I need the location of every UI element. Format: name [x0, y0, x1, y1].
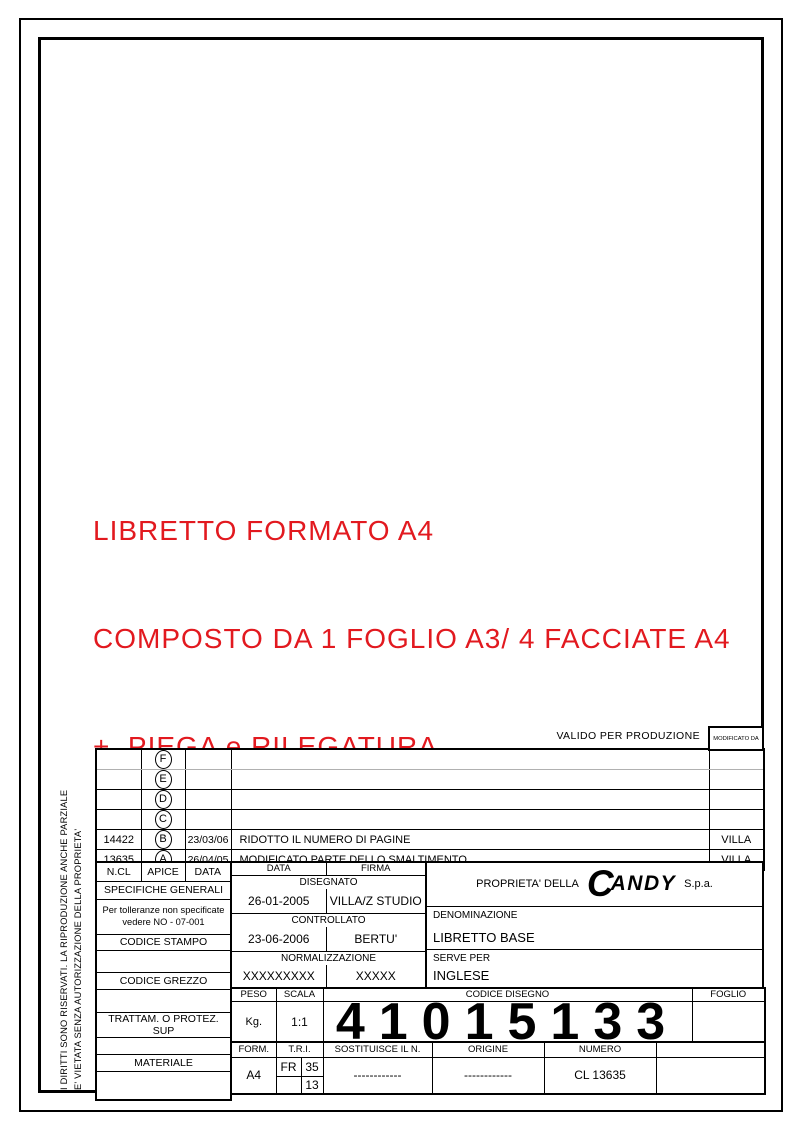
revision-apice: F [141, 749, 185, 770]
denominazione-value: LIBRETTO BASE [433, 930, 762, 945]
proprieta-cell: PROPRIETA' DELLA C ANDY S.p.a. [426, 862, 763, 906]
normalizzazione-date: XXXXXXXXX [231, 965, 326, 988]
spa-label: S.p.a. [684, 878, 713, 890]
materiale-value-cell [96, 1071, 231, 1100]
revision-apice: D [141, 790, 185, 810]
disclaimer-line-1: I DIRITTI SONO RISERVATI. LA RIPRODUZION… [58, 745, 72, 1090]
tri-fr-value: FR [276, 1057, 301, 1076]
codice-grezzo-label: CODICE GREZZO [96, 972, 231, 989]
serve-per-value: INGLESE [433, 968, 762, 983]
codice-disegno-header: CODICE DISEGNO [323, 988, 692, 1001]
data-header: DATA [185, 862, 231, 881]
apice-circle-d: D [155, 790, 172, 809]
revision-row-c: C [96, 810, 764, 830]
revision-date [185, 790, 231, 810]
extra-value-cell [656, 1057, 765, 1094]
codice-stampo-label: CODICE STAMPO [96, 934, 231, 950]
data-column-header: DATA [231, 862, 326, 875]
numero-header: NUMERO [544, 1042, 656, 1057]
serve-per-cell: SERVE PER INGLESE [426, 949, 763, 988]
revision-author [709, 770, 764, 790]
revision-ncl [96, 770, 141, 790]
normalizzazione-firma: XXXXX [326, 965, 426, 988]
candy-logo-rest: ANDY [611, 872, 677, 896]
tolleranze-line-2: vedere NO - 07-001 [97, 917, 230, 929]
controllato-date: 23-06-2006 [231, 927, 326, 951]
revision-apice: B [141, 830, 185, 850]
controllato-firma: BERTU' [326, 927, 426, 951]
sostituisce-header: SOSTITUISCE IL N. [323, 1042, 432, 1057]
copyright-disclaimer: I DIRITTI SONO RISERVATI. LA RIPRODUZION… [58, 745, 86, 1090]
revision-ncl [96, 790, 141, 810]
peso-value: Kg. [231, 1001, 276, 1043]
candy-logo: C ANDY [587, 869, 676, 899]
apice-circle-c: C [155, 810, 172, 829]
revision-row-b: 14422 B 23/03/06 RIDOTTO IL NUMERO DI PA… [96, 830, 764, 850]
serve-per-label: SERVE PER [433, 953, 762, 964]
controllato-label: CONTROLLATO [231, 913, 426, 927]
foglio-header: FOGLIO [692, 988, 765, 1001]
revision-table: F E D C 14422 B 23/ [95, 748, 765, 871]
codice-disegno-value: 41015133 [323, 1001, 692, 1043]
disegnato-firma: VILLA/Z STUDIO [326, 889, 426, 913]
denominazione-cell: DENOMINAZIONE LIBRETTO BASE [426, 906, 763, 949]
titleblock-left-column: N.CL APICE DATA SPECIFICHE GENERALI Per … [95, 861, 232, 1101]
scala-value: 1:1 [276, 1001, 323, 1043]
revision-date [185, 749, 231, 770]
red-notice-line-1: LIBRETTO FORMATO A4 [93, 513, 731, 549]
revision-ncl [96, 749, 141, 770]
apice-header: APICE [141, 862, 185, 881]
tolleranze-note: Per tolleranze non specificate vedere NO… [96, 899, 231, 934]
revision-apice: C [141, 810, 185, 830]
apice-circle-f: F [155, 750, 172, 769]
modificato-da-header: MODIFICATO DA [708, 726, 764, 751]
denominazione-label: DENOMINAZIONE [433, 910, 762, 921]
tri-13-value: 13 [301, 1076, 323, 1094]
revision-row-e: E [96, 770, 764, 790]
titleblock-format-band: FORM. T.R.I. SOSTITUISCE IL N. ORIGINE N… [230, 1041, 766, 1095]
codice-stampo-value-cell [96, 950, 231, 972]
revision-description: RIDOTTO IL NUMERO DI PAGINE [231, 830, 709, 850]
revision-apice: E [141, 770, 185, 790]
scala-header: SCALA [276, 988, 323, 1001]
revision-author [709, 790, 764, 810]
ncl-apice-data-header-row: N.CL APICE DATA [96, 862, 231, 881]
disegnato-date: 26-01-2005 [231, 889, 326, 913]
revision-row-d: D [96, 790, 764, 810]
trattamento-label: TRATTAM. O PROTEZ. SUP [96, 1012, 231, 1037]
titleblock-signatures: DATA FIRMA DISEGNATO 26-01-2005 VILLA/Z … [230, 861, 427, 989]
extra-header-cell [656, 1042, 765, 1057]
revision-ncl [96, 810, 141, 830]
candy-logo-c: C [587, 869, 614, 899]
revision-author [709, 810, 764, 830]
valido-per-produzione-label: VALIDO PER PRODUZIONE [500, 730, 700, 742]
revision-row-f: F [96, 749, 764, 770]
form-header: FORM. [231, 1042, 276, 1057]
apice-circle-e: E [155, 770, 172, 789]
firma-column-header: FIRMA [326, 862, 426, 875]
codice-grezzo-value-cell [96, 989, 231, 1012]
revision-ncl: 14422 [96, 830, 141, 850]
origine-value: ------------ [432, 1057, 544, 1094]
revision-description [231, 790, 709, 810]
titleblock-code-band: PESO SCALA CODICE DISEGNO FOGLIO Kg. 1:1… [230, 987, 766, 1044]
revision-author: VILLA [709, 830, 764, 850]
ncl-header: N.CL [96, 862, 141, 881]
normalizzazione-label: NORMALIZZAZIONE [231, 951, 426, 965]
tri-empty-cell [276, 1076, 301, 1094]
tolleranze-line-1: Per tolleranze non specificate [97, 905, 230, 917]
disegnato-label: DISEGNATO [231, 875, 426, 889]
red-notice-line-2: COMPOSTO DA 1 FOGLIO A3/ 4 FACCIATE A4 [93, 621, 731, 657]
apice-circle-b: B [155, 830, 172, 849]
tri-header: T.R.I. [276, 1042, 323, 1057]
tri-35-value: 35 [301, 1057, 323, 1076]
numero-value: CL 13635 [544, 1057, 656, 1094]
foglio-value-cell [692, 1001, 765, 1043]
proprieta-label: PROPRIETA' DELLA [476, 878, 579, 890]
revision-description [231, 749, 709, 770]
revision-date [185, 770, 231, 790]
revision-description [231, 810, 709, 830]
materiale-label: MATERIALE [96, 1054, 231, 1071]
revision-description [231, 770, 709, 790]
form-value: A4 [231, 1057, 276, 1094]
drawing-code-number: 41015133 [324, 1002, 692, 1042]
disclaimer-line-2: E' VIETATA SENZA AUTORIZZAZIONE DELLA PR… [72, 745, 86, 1090]
specifiche-generali-label: SPECIFICHE GENERALI [96, 881, 231, 899]
drawing-sheet: LIBRETTO FORMATO A4 COMPOSTO DA 1 FOGLIO… [0, 0, 802, 1134]
peso-header: PESO [231, 988, 276, 1001]
titleblock-owner: PROPRIETA' DELLA C ANDY S.p.a. DENOMINAZ… [425, 861, 764, 989]
sostituisce-value: ------------ [323, 1057, 432, 1094]
origine-header: ORIGINE [432, 1042, 544, 1057]
revision-author [709, 749, 764, 770]
revision-date [185, 810, 231, 830]
revision-date: 23/03/06 [185, 830, 231, 850]
trattamento-value-cell [96, 1037, 231, 1054]
